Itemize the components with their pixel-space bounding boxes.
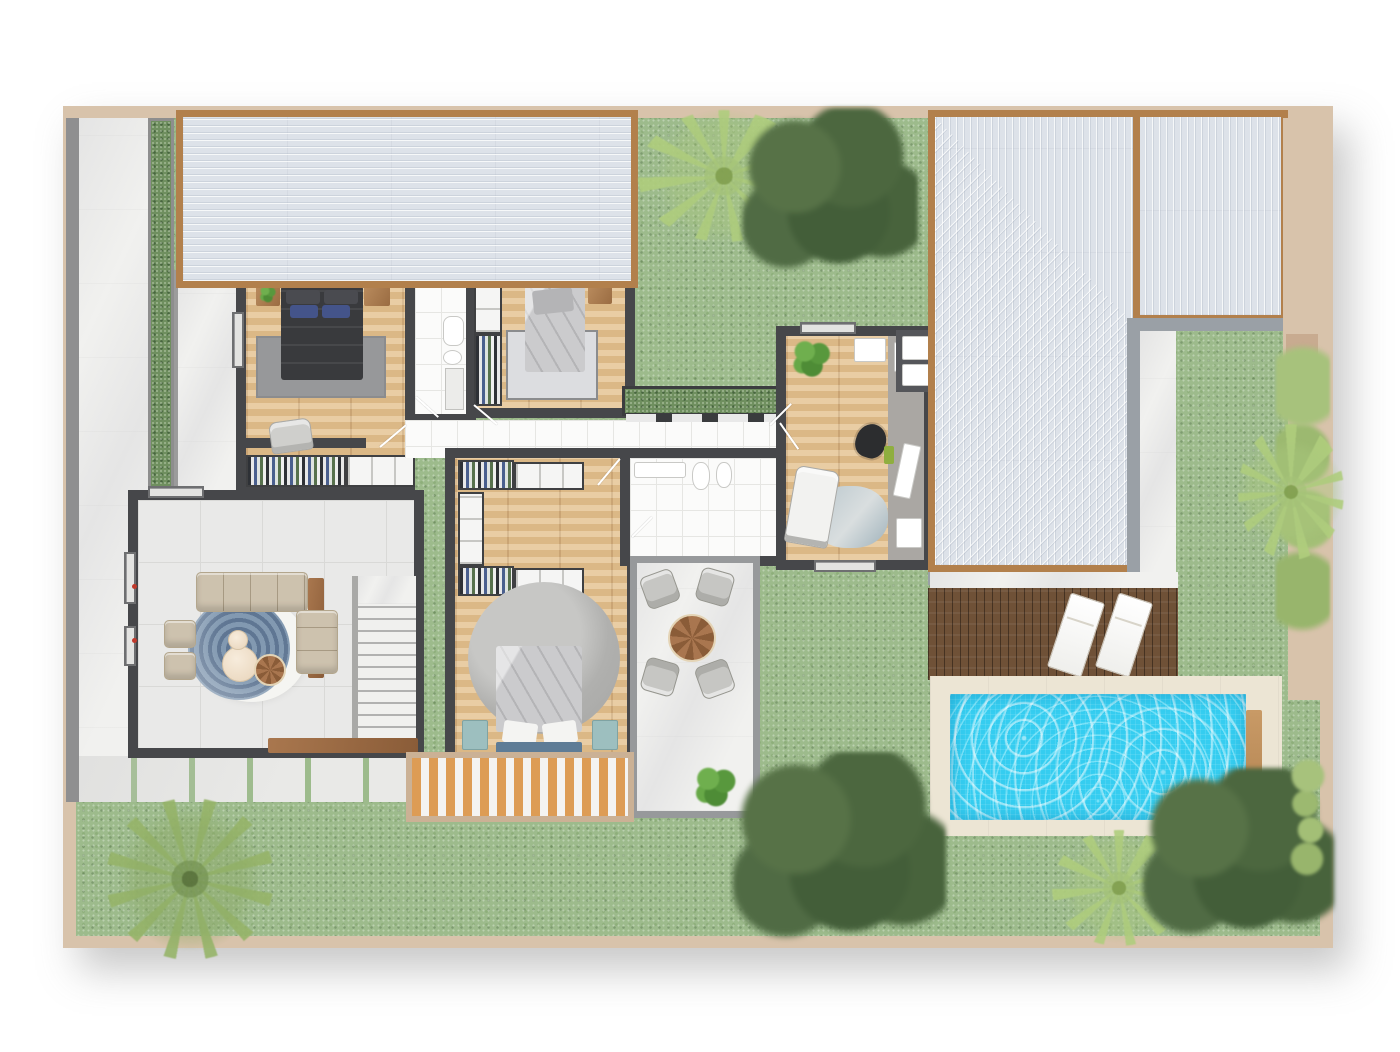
stair-landing <box>358 576 416 604</box>
entry-glass-door <box>148 486 204 498</box>
closet-row-1-clothes <box>458 460 514 490</box>
ensuite-shower <box>445 368 464 410</box>
bed1-pillow-blue-1 <box>290 305 318 318</box>
plan-marker-1 <box>132 584 137 589</box>
master-bed-duvet <box>496 646 582 732</box>
closet-side-boxes <box>458 492 484 566</box>
southwest-palm <box>106 798 274 960</box>
coffee-table-wood <box>254 654 286 686</box>
office-cabinet-3 <box>896 518 922 548</box>
bed2-pillow <box>532 287 574 315</box>
bathroom-2-toilet <box>692 462 710 490</box>
ottoman-1 <box>164 620 196 648</box>
east-palm <box>1238 424 1344 560</box>
master-nightstand-right <box>592 720 618 750</box>
bed1-pillow-1 <box>286 290 320 304</box>
living-window-2 <box>124 626 136 666</box>
roof-side-walkway <box>1140 331 1176 601</box>
closet-row-1-shelves <box>514 462 584 490</box>
roof-eave-east <box>1133 318 1293 331</box>
corner-bush-light <box>1282 758 1334 878</box>
sofa-top <box>196 572 308 612</box>
bedroom-1-wardrobe <box>246 455 346 487</box>
nightstand-right <box>364 286 390 306</box>
bed1-pillow-2 <box>324 290 358 304</box>
master-nightstand-left <box>462 720 488 750</box>
garage-roof <box>176 110 638 288</box>
bathroom-2-vanity <box>634 462 686 478</box>
ensuite-sink <box>443 316 464 346</box>
plan-marker-2 <box>132 638 137 643</box>
office-green-item <box>884 446 894 464</box>
floor-plan-canvas <box>0 0 1400 1052</box>
office-window-south <box>814 560 876 572</box>
ottoman-2 <box>164 652 196 680</box>
stepping-stone-path <box>79 756 411 802</box>
south-tree-large <box>732 752 946 944</box>
bedroom-1-armchair <box>268 417 314 455</box>
floor-cushion <box>228 630 248 650</box>
bedroom-1-window-west <box>232 312 244 368</box>
bed1-pillow-blue-2 <box>322 305 350 318</box>
ensuite-toilet <box>443 350 462 365</box>
wood-slat-deck <box>406 752 634 822</box>
bedroom-2-wardrobe-boxes <box>474 286 502 334</box>
courtyard-planter <box>622 386 790 416</box>
sofa-right <box>296 610 338 674</box>
office-cabinet-1 <box>854 338 886 362</box>
office-plant <box>788 336 836 380</box>
roof-eave-vertical <box>1127 318 1140 580</box>
bedroom-2-nightstand <box>588 286 612 304</box>
courtyard-trees <box>742 108 918 276</box>
bathroom-2-bidet <box>716 462 732 488</box>
bedroom-2-wardrobe <box>474 334 502 406</box>
boundary-wall <box>66 118 79 802</box>
office-window-north <box>800 322 856 334</box>
tv-console <box>268 738 418 753</box>
living-window-1 <box>124 552 136 604</box>
bedroom-1-shelves <box>346 455 415 487</box>
patio-table <box>668 614 716 662</box>
coffee-table-cream <box>222 646 258 682</box>
hallway-window-row <box>626 414 786 422</box>
